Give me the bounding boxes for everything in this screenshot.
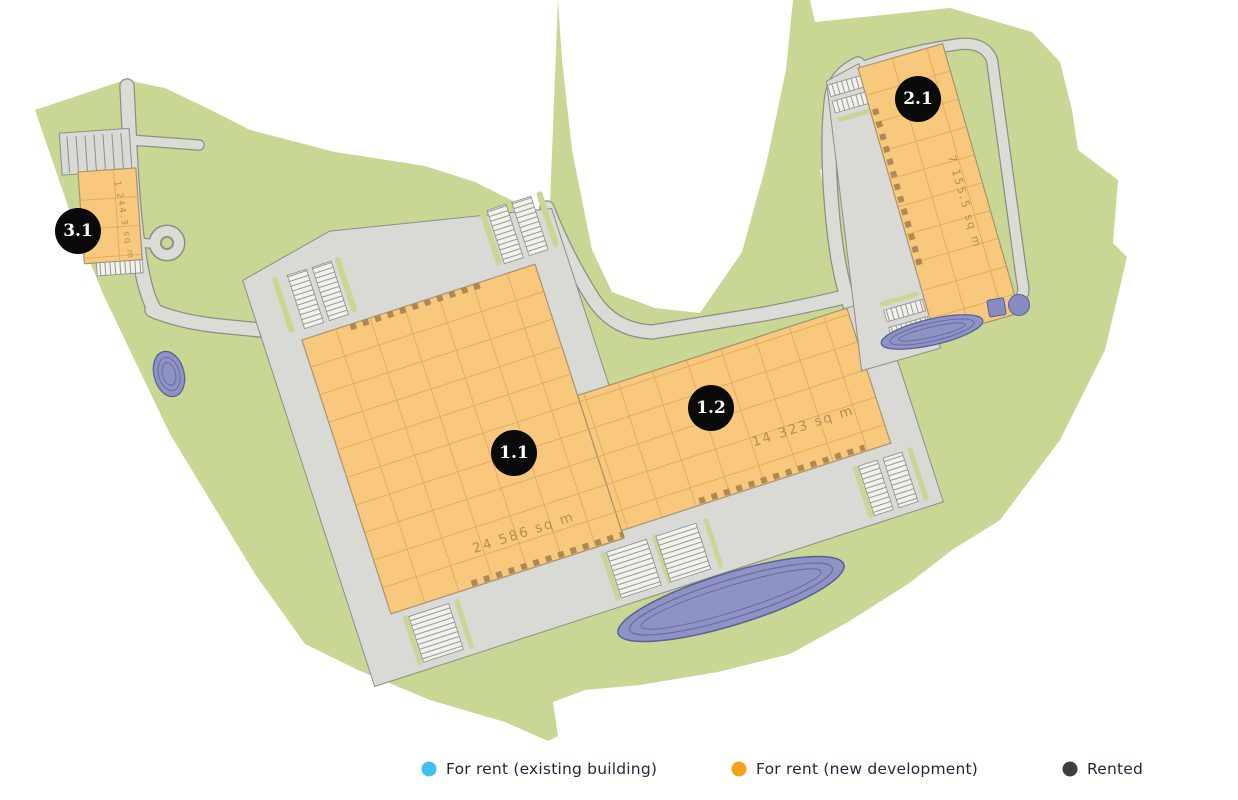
legend-item-for-rent-existing: For rent (existing building) <box>421 760 657 778</box>
legend-dot-orange-icon <box>731 761 747 777</box>
marker-label: 1.1 <box>499 443 529 463</box>
tank-square <box>987 298 1007 318</box>
site-plan-screen: 24 586 sq m 14 323 sq m 7 155.5 sq m 1 2… <box>0 0 1238 800</box>
tank-circle <box>1009 295 1030 316</box>
legend-item-rented: Rented <box>1062 760 1143 778</box>
building-marker-2-1[interactable]: 2.1 <box>895 76 941 122</box>
marker-label: 2.1 <box>903 89 933 109</box>
legend-dot-dark-icon <box>1062 761 1078 777</box>
legend-dot-cyan-icon <box>421 761 437 777</box>
dock-doors <box>96 260 143 276</box>
parking-lot <box>64 133 126 173</box>
building-marker-1-2[interactable]: 1.2 <box>688 385 734 431</box>
building-marker-1-1[interactable]: 1.1 <box>491 430 537 476</box>
marker-label: 3.1 <box>63 221 93 241</box>
legend-label: For rent (new development) <box>756 760 978 778</box>
roundabout-island <box>162 238 173 249</box>
legend-item-for-rent-new: For rent (new development) <box>731 760 978 778</box>
site-plan-map: 24 586 sq m 14 323 sq m 7 155.5 sq m 1 2… <box>0 0 1238 800</box>
legend-label: For rent (existing building) <box>446 760 657 778</box>
legend: For rent (existing building) For rent (n… <box>0 756 1238 790</box>
building-marker-3-1[interactable]: 3.1 <box>55 208 101 254</box>
marker-label: 1.2 <box>696 398 726 418</box>
legend-label: Rented <box>1087 760 1143 778</box>
